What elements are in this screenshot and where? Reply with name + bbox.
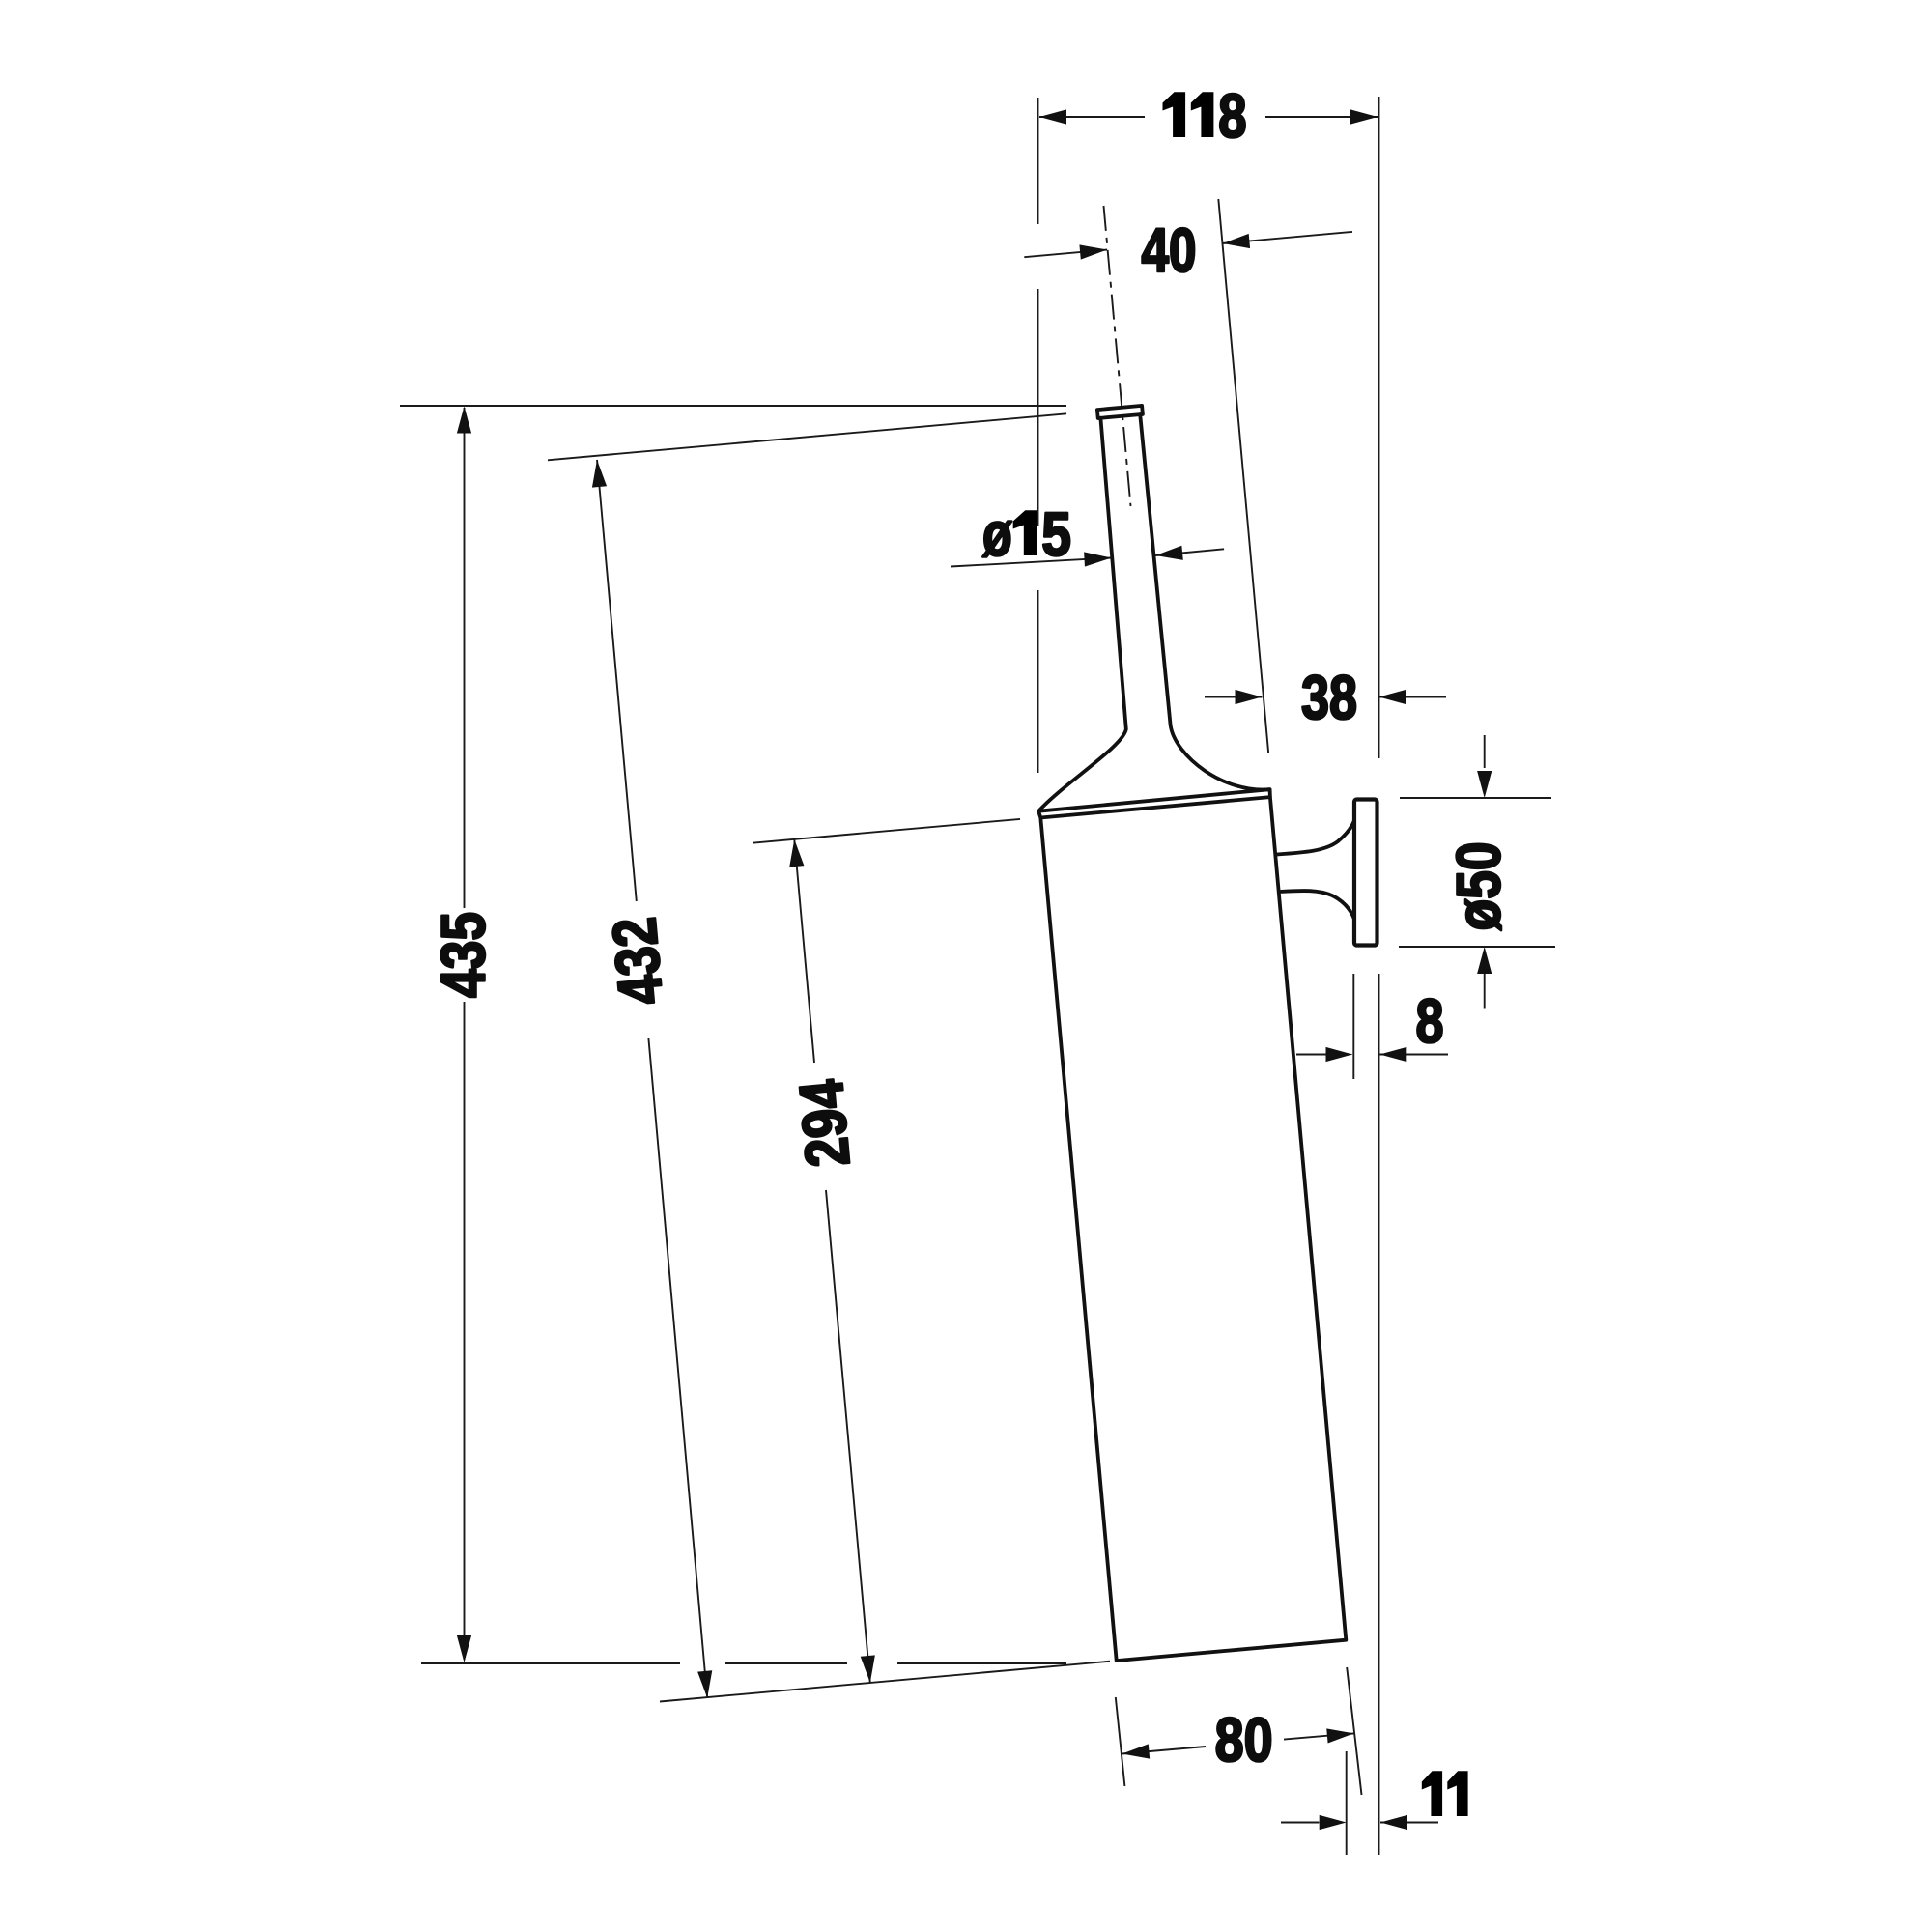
svg-text:ø: ø <box>982 499 1012 569</box>
svg-text:435: 435 <box>429 912 498 998</box>
svg-text:ø50: ø50 <box>1444 841 1514 930</box>
svg-text:38: 38 <box>1301 663 1357 732</box>
svg-text:294: 294 <box>785 1077 863 1170</box>
svg-text:5: 5 <box>1041 499 1071 569</box>
svg-text:8: 8 <box>1416 986 1444 1056</box>
svg-text:40: 40 <box>1142 215 1197 285</box>
svg-text:8: 8 <box>1218 81 1246 151</box>
svg-text:432: 432 <box>599 915 676 1008</box>
svg-text:80: 80 <box>1215 1705 1273 1775</box>
